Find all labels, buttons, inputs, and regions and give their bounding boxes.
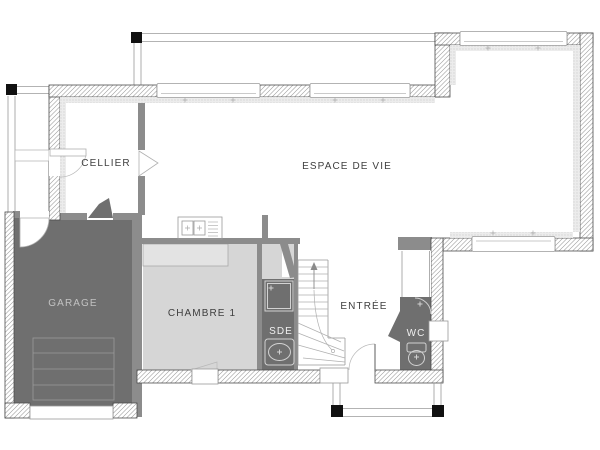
drainer-lines: [208, 222, 218, 236]
room-label-wc: WC: [407, 328, 426, 339]
entry-porch: [331, 383, 444, 417]
walking-line-end: [331, 349, 334, 352]
utility-box: [429, 321, 448, 341]
entrance-door: [349, 344, 375, 371]
cellier-east-wall-lower: [138, 176, 145, 215]
stair-outline: [298, 260, 345, 365]
window-under-stairs: [320, 368, 348, 383]
kitchen-sink-fixture: [178, 217, 222, 239]
chambre-sde-wall: [257, 244, 262, 370]
porch-post-right: [432, 405, 444, 417]
south-wall-a: [137, 370, 192, 383]
terrace-outline: [6, 32, 437, 212]
garage-east-wall: [132, 217, 142, 417]
wing-south-wall-b: [555, 238, 593, 251]
sde-stair-wall: [294, 244, 298, 370]
cellier-garage-door: [87, 198, 113, 220]
south-wall-c: [375, 370, 443, 383]
entree-east-wall: [431, 238, 443, 382]
door-leaf: [139, 151, 158, 176]
room-label-cellier: CELLIER: [81, 158, 130, 169]
door-leaf: [50, 149, 86, 156]
duct-shaft: [401, 251, 431, 297]
cellier-exterior-door: [15, 149, 86, 177]
terrace-edge-top: [142, 34, 437, 42]
garage-south-wall-b: [113, 403, 137, 418]
insulation-wing-west: [450, 45, 456, 85]
floor-plan-page: CELLIER ESPACE DE VIE GARAGE CHAMBRE 1 S…: [0, 0, 600, 450]
stair-steps: [298, 267, 328, 316]
north-wall-a: [49, 85, 157, 97]
garage-west-wall: [5, 212, 14, 418]
floor-plan-svg: CELLIER ESPACE DE VIE GARAGE CHAMBRE 1 S…: [0, 0, 600, 450]
cellier-east-wall-upper: [138, 97, 145, 150]
cellier-livingroom-door: [138, 151, 158, 176]
room-label-sde: SDE: [269, 326, 293, 337]
wc-north-wall: [398, 237, 432, 250]
terrace-post-link-top: [134, 43, 141, 85]
staircase: [298, 260, 345, 365]
south-wall-b: [218, 370, 320, 383]
insulation-cellier-west: [60, 103, 66, 213]
stair-walking-line: [314, 290, 332, 350]
wing-south-wall-a: [443, 238, 472, 251]
insulation-wing-east: [573, 45, 580, 232]
terrace-post-left: [6, 84, 17, 95]
wing-east-wall: [580, 33, 593, 251]
door-leaf: [88, 198, 113, 218]
terrace-post-top: [131, 32, 142, 43]
door-swing-arc: [349, 344, 375, 370]
room-label-entree: ENTRÉE: [340, 299, 387, 312]
room-label-espace-de-vie: ESPACE DE VIE: [302, 161, 392, 172]
porch-edges: [331, 383, 444, 417]
garage-south-wall-a: [5, 403, 30, 418]
wing-north-wall-a: [435, 33, 460, 45]
porch-post-left: [331, 405, 343, 417]
north-wall-b: [260, 85, 310, 97]
room-label-chambre-1: CHAMBRE 1: [168, 308, 236, 319]
terrace-edge-left: [8, 87, 49, 213]
garage-door-opening: [30, 406, 113, 419]
stair-arrow-head: [311, 262, 318, 270]
door-threshold: [15, 150, 49, 161]
kitchen-stub-wall: [262, 215, 268, 243]
chambre-closet: [143, 244, 228, 266]
room-label-garage: GARAGE: [48, 298, 97, 309]
stair-winders: [298, 323, 345, 362]
